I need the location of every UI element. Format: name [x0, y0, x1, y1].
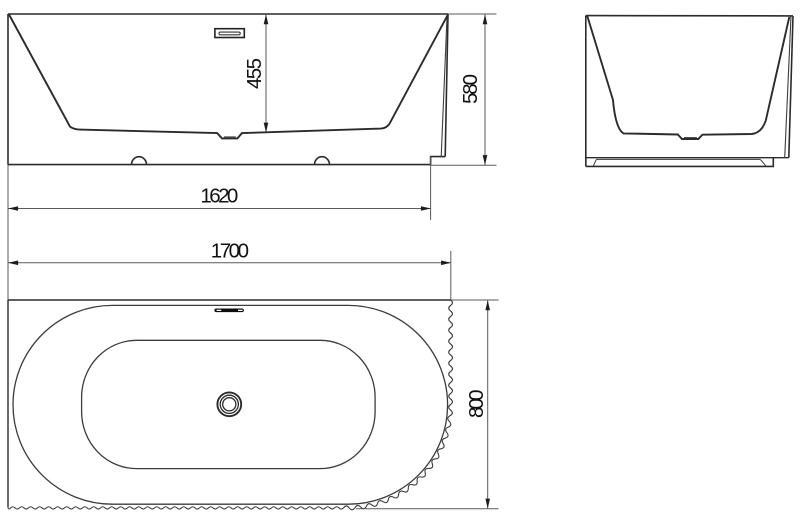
svg-text:800: 800 [465, 390, 488, 419]
svg-text:455: 455 [243, 58, 266, 89]
svg-text:1620: 1620 [200, 184, 238, 207]
svg-text:1700: 1700 [211, 239, 249, 262]
svg-text:580: 580 [459, 74, 482, 104]
